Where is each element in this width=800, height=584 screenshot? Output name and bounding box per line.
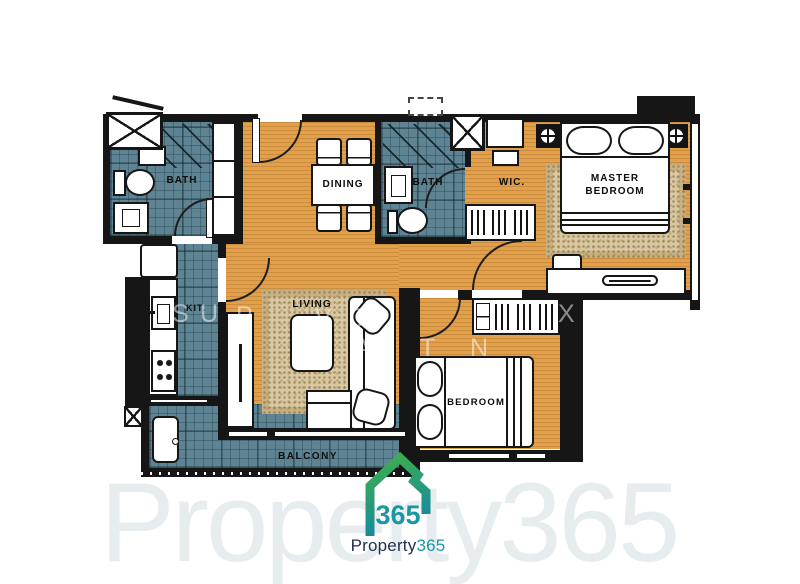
- brand-suffix: 365: [416, 536, 445, 555]
- bed-foot: [560, 212, 670, 234]
- dining-chair-icon: [316, 138, 342, 166]
- balcony-label: BALCONY: [268, 451, 348, 462]
- master-desk: [546, 268, 686, 295]
- wall-bath1-right: [236, 114, 243, 244]
- wall-kitchen-left: [125, 277, 148, 404]
- watermark-letter: N: [470, 334, 488, 363]
- hanger-group: [539, 304, 555, 330]
- wardrobe-drawers: [476, 303, 490, 330]
- living-label: LIVING: [276, 299, 348, 310]
- watermark-letter: U: [200, 300, 218, 329]
- watermark-letter: P: [236, 302, 253, 331]
- shaft-tick: [112, 95, 164, 111]
- master-bedroom-label: MASTER BEDROOM: [573, 172, 657, 198]
- stove-icon: [151, 350, 176, 392]
- bed2-body: BEDROOM: [444, 356, 534, 448]
- watermark-letter: ): [597, 298, 605, 327]
- wall-bath1-bottom-a: [103, 236, 172, 244]
- wardrobe-hangers-icon-2: [472, 298, 560, 335]
- wic-cabinet: [486, 118, 524, 148]
- window-latch-icon-2: [683, 218, 691, 224]
- bath1-label: BATH: [150, 175, 214, 186]
- brand-prefix: Property: [351, 536, 417, 555]
- watermark-letter: V: [315, 304, 332, 333]
- sink-basin: [157, 304, 170, 324]
- watermark-letter: I: [305, 332, 312, 361]
- drain-x-icon: [124, 406, 143, 427]
- master-window-wall: [690, 114, 700, 310]
- dining-chair-icon: [346, 138, 372, 166]
- desk-tray-icon: [602, 275, 658, 286]
- wall-kitchen-living: [218, 302, 226, 428]
- hanger-group: [492, 210, 509, 235]
- dining-label: DINING: [313, 179, 373, 190]
- pillow-icon: [566, 126, 612, 155]
- sink-basin: [122, 209, 140, 227]
- toilet-bowl-icon-2: [397, 207, 428, 234]
- floor-plan-image: Property365: [0, 0, 800, 584]
- closet-cabinet: [212, 122, 236, 236]
- wardrobe-hangers-icon: [465, 204, 536, 241]
- logo-365-text: 365: [368, 500, 428, 531]
- balcony-sliding-door-panel: [228, 431, 268, 437]
- hanger-group: [517, 304, 535, 330]
- wall-bath2-left: [375, 122, 381, 244]
- bedroom2-window: [448, 453, 510, 459]
- sink-icon: [113, 202, 149, 234]
- hanger-group: [514, 210, 531, 235]
- wall-bath2-bottom: [375, 237, 471, 244]
- watermark-letter: T: [420, 334, 435, 363]
- kitchen-pass-window: [150, 399, 208, 403]
- bedroom2-bed-icon: BEDROOM: [414, 356, 534, 448]
- vent-icon: [408, 97, 443, 116]
- washer-icon: [152, 416, 179, 463]
- sofa-chaise: [306, 390, 352, 430]
- hanger-group: [495, 304, 513, 330]
- bath2-label: BATH: [398, 177, 458, 188]
- fridge-icon: [140, 244, 178, 278]
- tv-icon: [239, 344, 242, 402]
- shaft-x-icon: [106, 112, 163, 150]
- bedroom2-window-2: [516, 453, 546, 459]
- hanger-group: [471, 210, 487, 235]
- window-latch-icon: [683, 184, 691, 190]
- balcony-sliding-door-panel-2: [274, 431, 406, 437]
- watermark-letter: T: [352, 304, 367, 333]
- dining-chair-icon: [346, 204, 372, 232]
- pillow-icon: [417, 404, 443, 440]
- window-corner-top: [690, 114, 700, 124]
- pillow-icon: [618, 126, 664, 155]
- bedroom2-label: BEDROOM: [446, 397, 506, 408]
- bed-body: MASTER BEDROOM: [560, 156, 670, 214]
- dining-chair-icon: [316, 204, 342, 232]
- watermark-letter: A: [354, 334, 371, 363]
- watermark-letter: X: [558, 300, 575, 329]
- wall-kitchen-living-stub: [218, 244, 226, 258]
- faucet-icon: [147, 311, 155, 314]
- master-bed-icon: MASTER BEDROOM: [560, 122, 670, 234]
- ceiling-light-icon: [536, 124, 560, 148]
- wic-stool: [492, 150, 519, 166]
- pillow-icon: [417, 361, 443, 397]
- washer-knob: [172, 438, 179, 445]
- shaft-x-icon-2: [450, 114, 485, 151]
- logo-brand-name: Property365: [318, 536, 478, 556]
- wic-label: WIC.: [486, 177, 538, 188]
- watermark-letter: S: [172, 300, 189, 329]
- window-corner-bottom: [690, 300, 700, 310]
- column-top-right: [637, 96, 695, 122]
